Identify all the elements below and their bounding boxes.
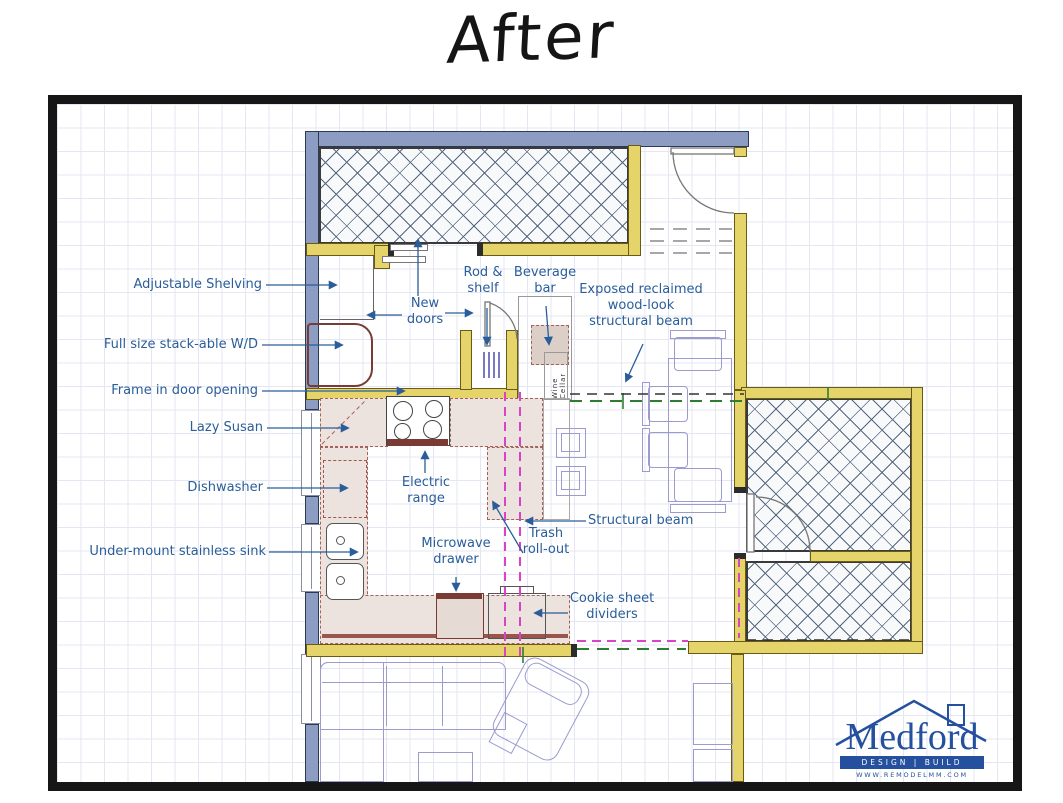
- label-stackable-wd: Full size stack-able W/D: [85, 337, 258, 353]
- sink-basin-2: [326, 563, 364, 600]
- window-left-1: [301, 410, 321, 496]
- label-frame-in-door: Frame in door opening: [95, 383, 258, 399]
- shelving-closet: [320, 256, 374, 320]
- coffee-table: [418, 752, 473, 782]
- dining-chair-bottom-back: [670, 504, 726, 513]
- page-title: After: [0, 0, 1063, 95]
- clothes-rod-symbol: [483, 352, 501, 378]
- wall-entry-stub: [734, 147, 747, 157]
- window-left-3: [301, 654, 321, 724]
- label-lazy-susan: Lazy Susan: [140, 420, 263, 436]
- bookshelf-upper: [693, 683, 733, 745]
- logo-tagline: DESIGN | BUILD: [840, 756, 984, 769]
- faucet-2: [336, 576, 345, 585]
- bar-stool-1-seat: [561, 433, 580, 452]
- closet-right-wall: [506, 330, 518, 390]
- storage-hatch-area: [319, 147, 629, 244]
- label-microwave-drawer: Microwave drawer: [414, 536, 498, 568]
- label-undermount-sink: Under-mount stainless sink: [78, 544, 266, 560]
- bookshelf-lower: [693, 749, 733, 782]
- undermount-sink: [322, 520, 368, 602]
- wall-left-seg4: [305, 724, 319, 782]
- sofa-cushion-line-2: [442, 666, 443, 726]
- cookie-sheet-cabinet: [488, 593, 546, 639]
- label-structural-beam: Structural beam: [588, 513, 700, 529]
- bar-stool-1: [556, 428, 586, 458]
- bar-stool-2-seat: [561, 471, 580, 490]
- half-wall-kitchen: [306, 644, 577, 657]
- sink-basin-1: [326, 523, 364, 560]
- electric-range-unit: [386, 396, 450, 446]
- right-room-left-wall-lower: [734, 553, 746, 645]
- label-exposed-beam: Exposed reclaimed wood-look structural b…: [564, 282, 718, 330]
- wall-left-seg2: [305, 496, 319, 524]
- right-room-right-wall: [911, 387, 923, 645]
- half-wall-cap: [571, 644, 577, 657]
- washer-dryer: [307, 323, 373, 387]
- logo-url: WWW.REMODELMM.COM: [840, 771, 984, 779]
- label-new-doors: New doors: [388, 296, 462, 328]
- right-room-left-wall-upper: [734, 390, 746, 493]
- burner-4: [423, 420, 442, 439]
- counter-peninsula: [487, 447, 543, 520]
- burner-3: [394, 423, 411, 440]
- cookie-cabinet-bump: [500, 586, 534, 594]
- sofa-chaise: [320, 662, 384, 782]
- label-electric-range: Electric range: [389, 475, 463, 507]
- dishwasher-unit: [323, 460, 367, 518]
- label-dishwasher: Dishwasher: [140, 480, 263, 496]
- wall-top-exterior: [305, 131, 749, 147]
- faucet-1: [336, 536, 345, 545]
- counter-top-right: [450, 398, 543, 447]
- sofa-cushion-line-1: [386, 666, 387, 726]
- wall-storage-right: [628, 145, 641, 256]
- right-room-bottom-wall: [688, 641, 923, 654]
- counter-top-left: [320, 398, 388, 447]
- label-adjustable-shelving: Adjustable Shelving: [100, 277, 262, 293]
- label-trash-rollout: Trash roll-out: [508, 526, 584, 558]
- burner-2: [425, 400, 443, 418]
- pocket-door-1: [390, 244, 428, 251]
- right-room-upper-hatch: [746, 398, 912, 552]
- rr-door-jamb-top: [734, 487, 746, 493]
- label-cookie-sheet: Cookie sheet dividers: [564, 591, 660, 623]
- sofa-back-line: [322, 682, 504, 683]
- right-room-top-wall: [741, 387, 923, 399]
- dining-table: [668, 358, 732, 502]
- medford-logo: Medford DESIGN | BUILD WWW.REMODELMM.COM: [830, 693, 994, 785]
- closet-left-wall: [460, 330, 472, 390]
- logo-name: Medford: [830, 715, 994, 759]
- microwave-front: [437, 594, 482, 599]
- wall-right-upper: [734, 213, 747, 390]
- wine-cellar-label: Wine Cellar: [551, 353, 567, 399]
- doorway-jamb-right: [477, 243, 483, 256]
- pocket-door-2: [382, 256, 426, 263]
- range-front-panel: [387, 439, 448, 446]
- right-room-lower-hatch: [746, 561, 912, 642]
- canvas: After Wine Cellar: [0, 0, 1063, 803]
- burner-1: [393, 401, 413, 421]
- right-room-divider-wall: [810, 551, 911, 562]
- bar-overhang: [543, 398, 570, 520]
- bar-stool-2: [556, 466, 586, 496]
- wall-storage-bottom-right: [477, 243, 641, 256]
- rr-door-jamb-bottom: [734, 553, 746, 559]
- window-left-2: [301, 524, 321, 592]
- microwave-drawer-unit: [436, 593, 484, 639]
